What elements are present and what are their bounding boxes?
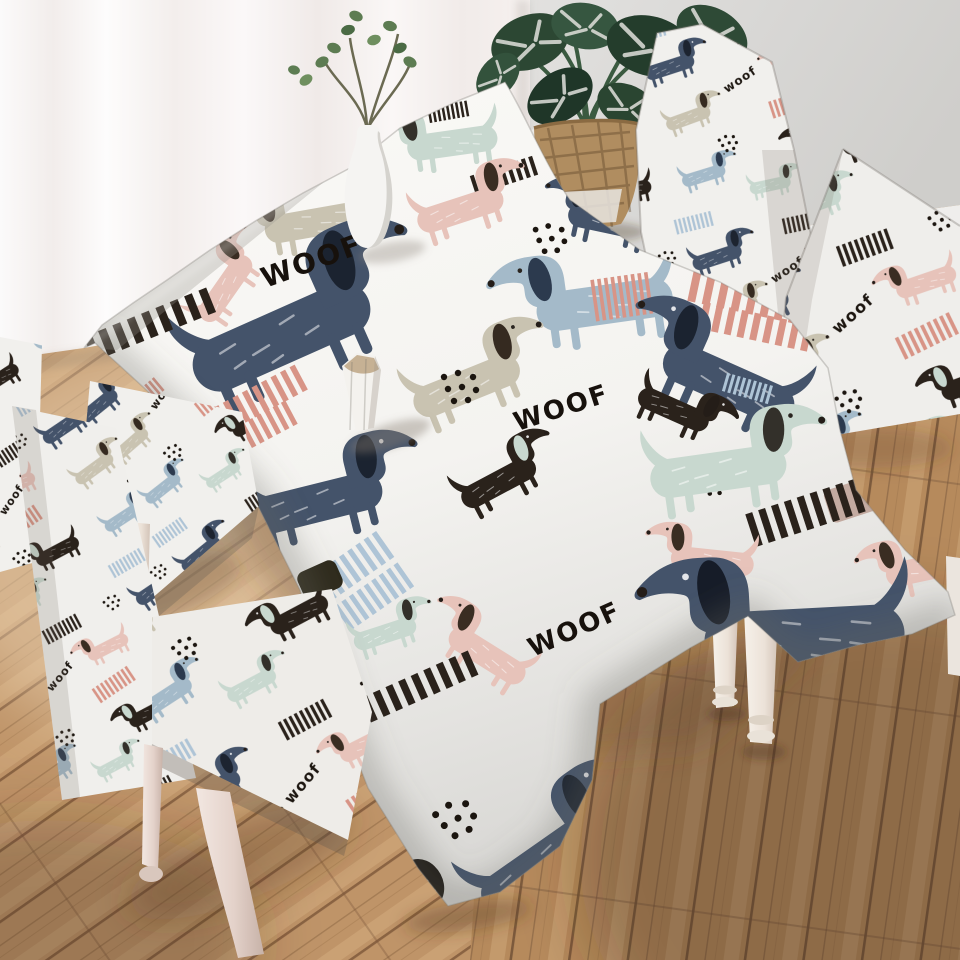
table-leg-ring: [713, 686, 737, 695]
table-leg-ring: [748, 715, 774, 725]
chair-leg-foot: [139, 866, 163, 882]
product-photo: woof: [0, 0, 960, 960]
scene-canvas: woof: [0, 0, 960, 960]
table-leg-ring: [712, 697, 738, 707]
leg-shadow: [707, 707, 747, 721]
leg-shadow: [742, 744, 786, 760]
table-leg-ring: [747, 730, 775, 742]
